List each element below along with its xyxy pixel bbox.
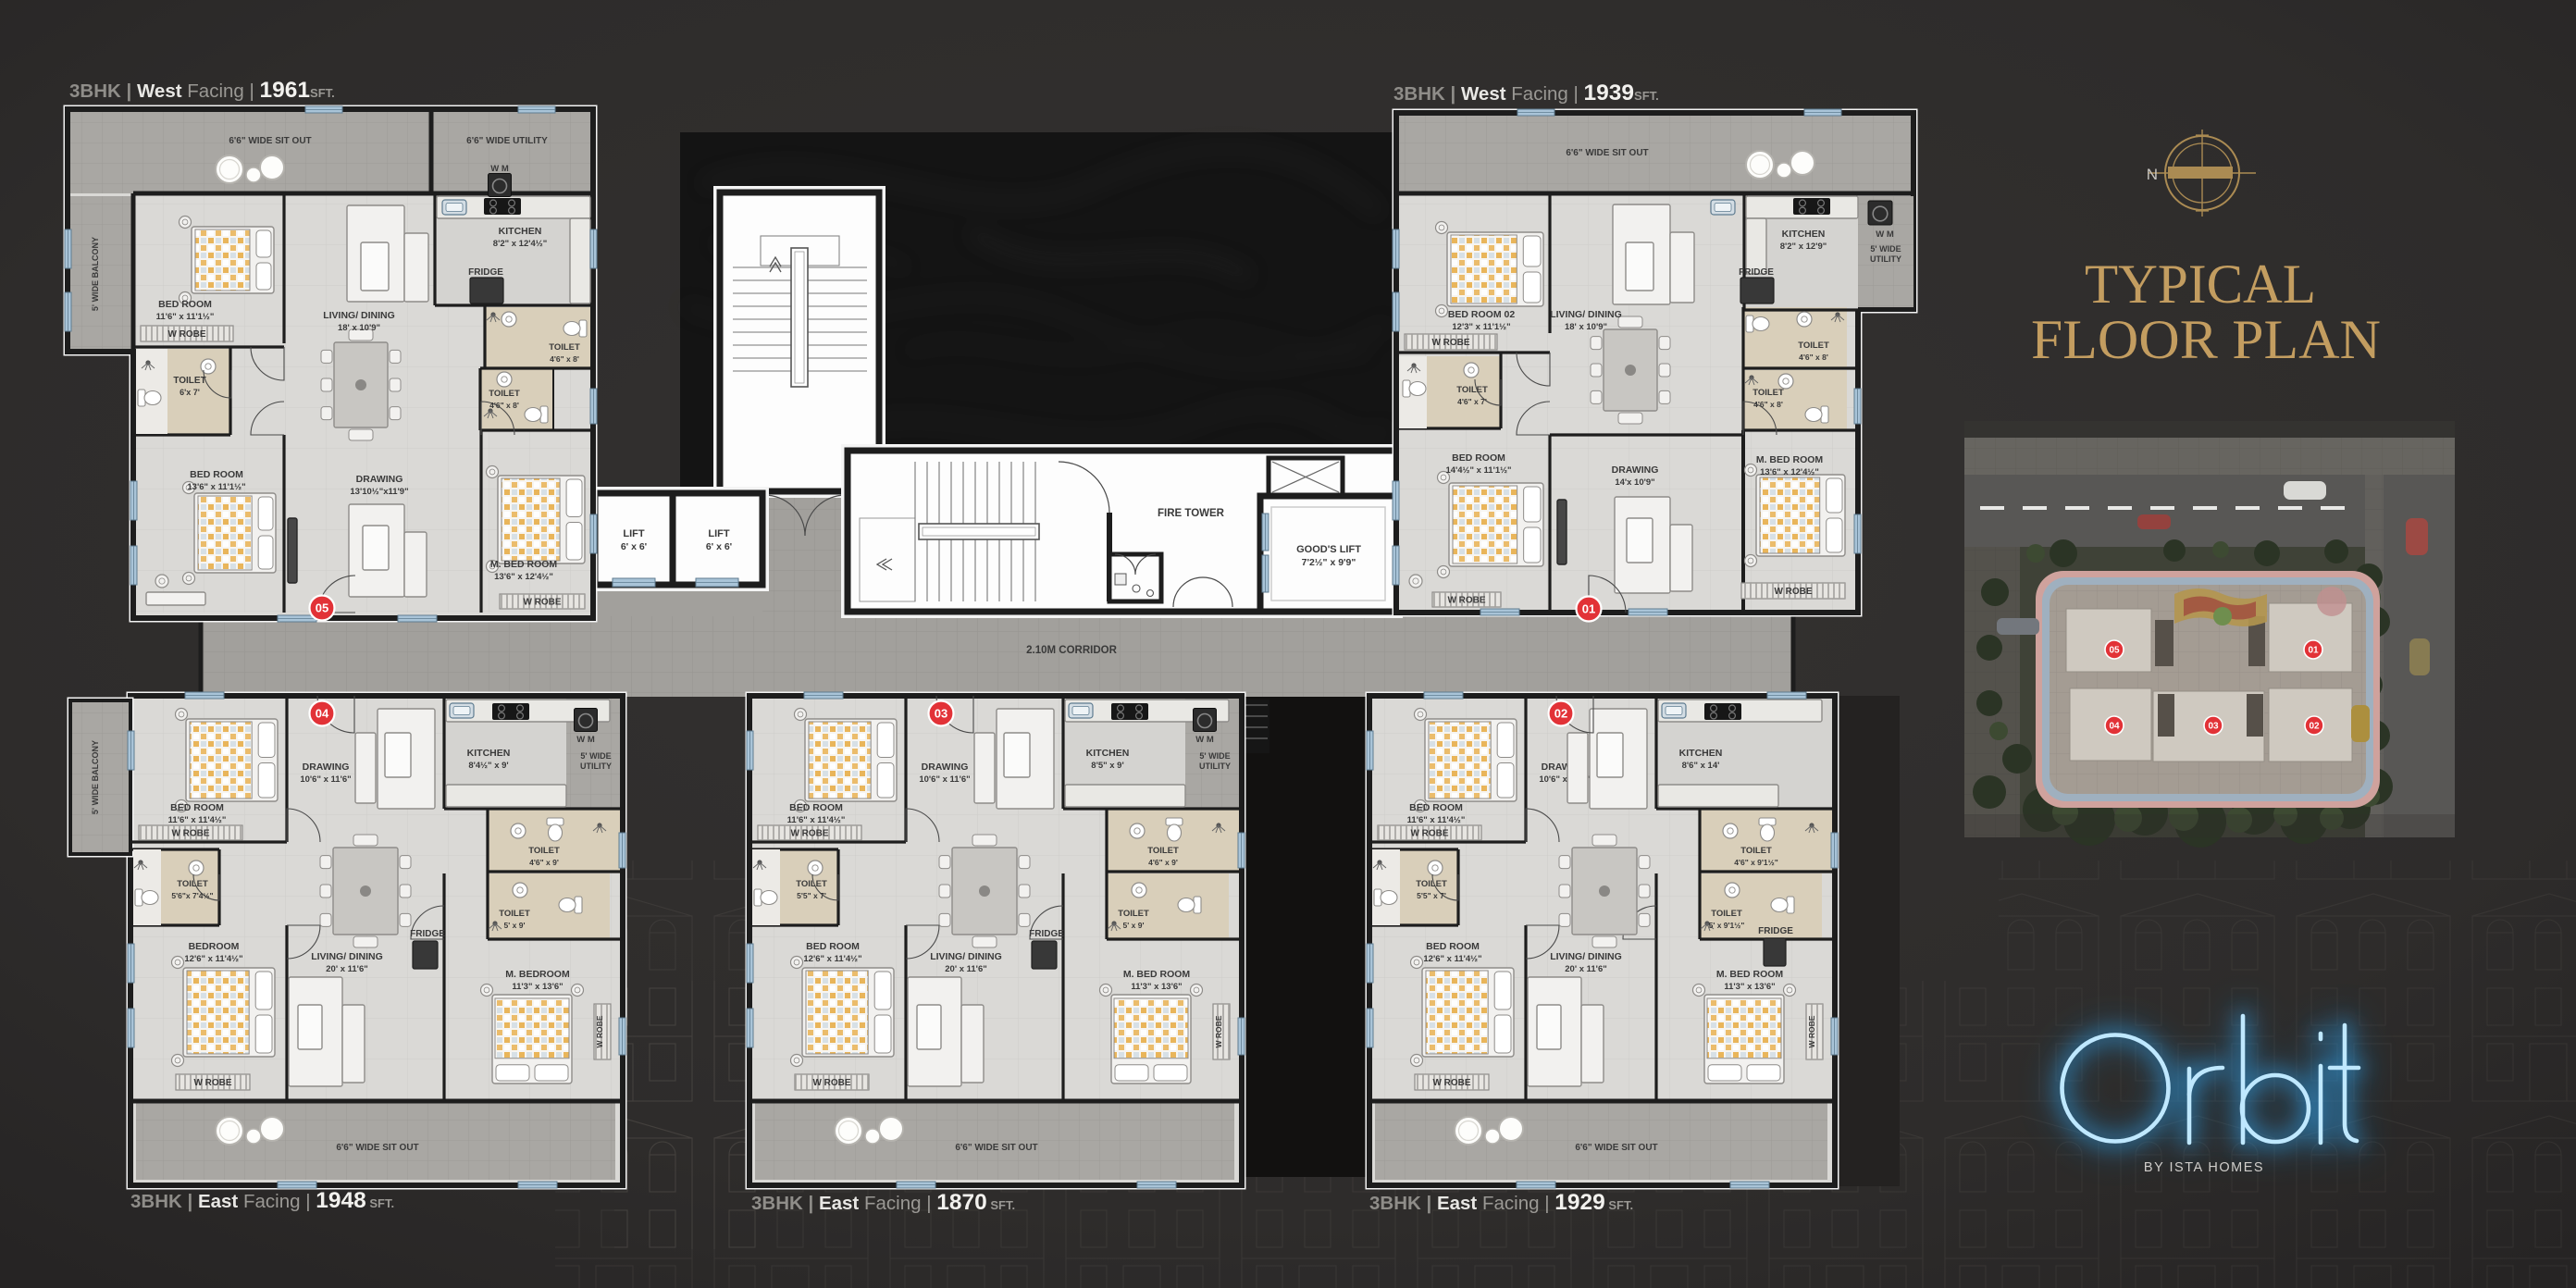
svg-text:TOILET: TOILET: [1740, 846, 1772, 856]
svg-text:04: 04: [316, 707, 329, 721]
svg-text:TOILET: TOILET: [1118, 909, 1149, 919]
svg-text:TOILET: TOILET: [1147, 846, 1179, 856]
svg-text:W ROBE: W ROBE: [171, 829, 209, 839]
svg-text:BED ROOM 02: BED ROOM 02: [1448, 309, 1516, 320]
svg-text:TOILET: TOILET: [177, 879, 208, 889]
svg-text:11'6" x 11'4½": 11'6" x 11'4½": [787, 815, 846, 825]
svg-text:6'6" WIDE SIT OUT: 6'6" WIDE SIT OUT: [955, 1143, 1037, 1153]
svg-text:W ROBE: W ROBE: [1807, 1015, 1816, 1047]
svg-text:12'6" x 11'4½": 12'6" x 11'4½": [803, 954, 861, 964]
svg-text:M. BED ROOM: M. BED ROOM: [1716, 969, 1784, 980]
svg-text:4'6" x 8': 4'6" x 8': [1799, 353, 1828, 362]
svg-text:4'6" x 9'1½": 4'6" x 9'1½": [1734, 858, 1778, 867]
svg-text:5' WIDE BALCONY: 5' WIDE BALCONY: [91, 237, 100, 311]
svg-text:5' x 9': 5' x 9': [504, 921, 526, 930]
svg-text:4'6" x 7': 4'6" x 7': [1457, 397, 1487, 406]
svg-text:4'6" x 9': 4'6" x 9': [1148, 858, 1178, 867]
svg-text:W ROBE: W ROBE: [1431, 338, 1469, 348]
svg-text:W M: W M: [1876, 229, 1894, 240]
svg-text:W ROBE: W ROBE: [193, 1078, 231, 1088]
svg-text:8'2" x 12'4½": 8'2" x 12'4½": [493, 239, 547, 249]
svg-text:M. BEDROOM: M. BEDROOM: [505, 969, 570, 980]
svg-text:3BHK | West Facing | 1961SFT.: 3BHK | West Facing | 1961SFT.: [69, 78, 335, 103]
svg-text:11'3" x 13'6": 11'3" x 13'6": [512, 982, 563, 992]
svg-text:KITCHEN: KITCHEN: [1782, 229, 1826, 240]
svg-text:KITCHEN: KITCHEN: [499, 226, 542, 237]
svg-text:8'6" x 14': 8'6" x 14': [1682, 761, 1720, 771]
svg-text:TOILET: TOILET: [1711, 909, 1742, 919]
svg-text:FRIDGE: FRIDGE: [1739, 267, 1774, 278]
svg-text:LIFT: LIFT: [708, 528, 729, 539]
svg-text:M. BED ROOM: M. BED ROOM: [1756, 454, 1824, 465]
svg-text:W ROBE: W ROBE: [812, 1078, 850, 1088]
svg-text:13'6" x 11'1½": 13'6" x 11'1½": [187, 482, 245, 492]
svg-text:5' WIDE: 5' WIDE: [1870, 244, 1901, 254]
svg-text:6'6" WIDE SIT OUT: 6'6" WIDE SIT OUT: [336, 1143, 418, 1153]
svg-text:8'2" x 12'9": 8'2" x 12'9": [1780, 241, 1827, 252]
svg-text:4'6" x 8': 4'6" x 8': [550, 354, 579, 364]
svg-text:W ROBE: W ROBE: [523, 598, 561, 608]
svg-text:LIFT: LIFT: [623, 528, 644, 539]
svg-text:LIVING/ DINING: LIVING/ DINING: [1550, 951, 1622, 962]
svg-text:12'3" x 11'1½": 12'3" x 11'1½": [1452, 322, 1510, 332]
svg-text:DRAWING: DRAWING: [1612, 464, 1659, 476]
svg-text:13'6" x 12'4½": 13'6" x 12'4½": [1760, 467, 1819, 477]
svg-text:14'x 10'9": 14'x 10'9": [1615, 477, 1654, 488]
svg-text:BED ROOM: BED ROOM: [789, 802, 843, 813]
svg-text:UTILITY: UTILITY: [580, 762, 612, 771]
svg-text:3BHK | East Facing | 1870 SFT.: 3BHK | East Facing | 1870 SFT.: [751, 1190, 1015, 1215]
svg-text:3BHK | West Facing | 1939SFT.: 3BHK | West Facing | 1939SFT.: [1393, 80, 1659, 105]
svg-text:LIVING/ DINING: LIVING/ DINING: [311, 951, 383, 962]
svg-text:11'6" x 11'4½": 11'6" x 11'4½": [1407, 815, 1466, 825]
svg-text:05: 05: [2109, 646, 2120, 656]
svg-text:LIVING/ DINING: LIVING/ DINING: [323, 310, 395, 321]
svg-text:3BHK | East Facing | 1929 SFT.: 3BHK | East Facing | 1929 SFT.: [1369, 1190, 1633, 1215]
svg-text:01: 01: [2308, 646, 2319, 656]
svg-text:4'6" x 8': 4'6" x 8': [1753, 400, 1783, 409]
svg-text:18' x 10'9": 18' x 10'9": [338, 323, 380, 333]
svg-text:M. BED ROOM: M. BED ROOM: [490, 559, 558, 570]
svg-text:W M: W M: [576, 735, 595, 745]
svg-text:KITCHEN: KITCHEN: [1086, 748, 1130, 759]
svg-text:FIRE TOWER: FIRE TOWER: [1158, 508, 1225, 519]
svg-text:FLOOR PLAN: FLOOR PLAN: [2031, 309, 2381, 370]
svg-text:11'6" x 11'1½": 11'6" x 11'1½": [156, 312, 215, 322]
svg-text:5'5" x 7': 5'5" x 7': [797, 891, 826, 900]
svg-text:TOILET: TOILET: [549, 342, 580, 353]
svg-text:18' x 10'9": 18' x 10'9": [1565, 322, 1607, 332]
svg-text:11'6" x 11'4½": 11'6" x 11'4½": [168, 815, 227, 825]
svg-text:03: 03: [2208, 722, 2219, 732]
svg-text:5'6"x 7'4½": 5'6"x 7'4½": [171, 891, 213, 900]
svg-text:KITCHEN: KITCHEN: [1679, 748, 1723, 759]
svg-text:02: 02: [2309, 722, 2320, 732]
svg-text:GOOD'S LIFT: GOOD'S LIFT: [1296, 544, 1361, 555]
svg-text:20' x 11'6": 20' x 11'6": [1565, 964, 1606, 974]
svg-text:TOILET: TOILET: [489, 389, 520, 399]
svg-text:14'4½" x 11'1½": 14'4½" x 11'1½": [1445, 465, 1511, 476]
svg-text:N: N: [2147, 166, 2158, 183]
svg-text:W ROBE: W ROBE: [1432, 1078, 1470, 1088]
svg-text:W M: W M: [1195, 735, 1214, 745]
svg-text:6'6" WIDE UTILITY: 6'6" WIDE UTILITY: [466, 136, 548, 146]
svg-text:LIVING/ DINING: LIVING/ DINING: [1550, 309, 1622, 320]
svg-text:BED ROOM: BED ROOM: [1452, 452, 1505, 464]
svg-text:W ROBE: W ROBE: [167, 329, 205, 340]
svg-text:5' WIDE BALCONY: 5' WIDE BALCONY: [91, 740, 100, 814]
svg-text:05: 05: [316, 601, 328, 615]
svg-text:6' x 6': 6' x 6': [621, 541, 647, 552]
svg-text:W ROBE: W ROBE: [1410, 829, 1448, 839]
svg-text:BED ROOM: BED ROOM: [158, 299, 212, 310]
svg-text:TOILET: TOILET: [528, 846, 560, 856]
svg-text:FRIDGE: FRIDGE: [468, 267, 503, 278]
svg-text:W M: W M: [490, 164, 509, 174]
svg-text:5' x 9': 5' x 9': [1123, 921, 1145, 930]
svg-text:DRAWING: DRAWING: [303, 762, 350, 773]
svg-text:6'6" WIDE SIT OUT: 6'6" WIDE SIT OUT: [1566, 148, 1648, 158]
svg-text:11'3" x 13'6": 11'3" x 13'6": [1131, 982, 1182, 992]
svg-text:W ROBE: W ROBE: [1214, 1015, 1223, 1047]
svg-text:TOILET: TOILET: [796, 879, 827, 889]
svg-text:7'2½" x 9'9": 7'2½" x 9'9": [1302, 557, 1356, 568]
svg-text:W ROBE: W ROBE: [595, 1015, 604, 1047]
svg-text:LIVING/ DINING: LIVING/ DINING: [930, 951, 1002, 962]
svg-text:5'5" x 7': 5'5" x 7': [1417, 891, 1446, 900]
svg-text:TOILET: TOILET: [1752, 388, 1784, 398]
svg-text:FRIDGE: FRIDGE: [1029, 929, 1064, 939]
svg-text:M. BED ROOM: M. BED ROOM: [1123, 969, 1191, 980]
svg-text:BEDROOM: BEDROOM: [189, 941, 240, 952]
svg-text:4'6" x 9': 4'6" x 9': [529, 858, 559, 867]
svg-text:3BHK | East Facing | 1948 SFT.: 3BHK | East Facing | 1948 SFT.: [130, 1188, 394, 1213]
svg-text:TOILET: TOILET: [1456, 385, 1488, 395]
svg-text:DRAWING: DRAWING: [922, 762, 969, 773]
svg-text:6'6" WIDE SIT OUT: 6'6" WIDE SIT OUT: [229, 136, 311, 146]
svg-text:FRIDGE: FRIDGE: [410, 929, 445, 939]
svg-text:BED ROOM: BED ROOM: [806, 941, 860, 952]
svg-text:BED ROOM: BED ROOM: [1426, 941, 1480, 952]
svg-text:BED ROOM: BED ROOM: [170, 802, 224, 813]
svg-text:13'6" x 12'4½": 13'6" x 12'4½": [494, 572, 553, 582]
svg-text:20' x 11'6": 20' x 11'6": [326, 964, 367, 974]
svg-text:6' x 6': 6' x 6': [706, 541, 732, 552]
svg-text:FRIDGE: FRIDGE: [1758, 926, 1793, 936]
svg-text:W ROBE: W ROBE: [1447, 596, 1485, 606]
svg-text:10'6" x 11'6": 10'6" x 11'6": [919, 774, 970, 785]
svg-text:UTILITY: UTILITY: [1199, 762, 1231, 771]
svg-text:TOILET: TOILET: [1416, 879, 1447, 889]
svg-text:13'10½"x11'9": 13'10½"x11'9": [350, 487, 408, 497]
svg-text:W ROBE: W ROBE: [1774, 587, 1812, 597]
svg-text:6'x 7': 6'x 7': [180, 388, 200, 397]
svg-text:UTILITY: UTILITY: [1870, 254, 1901, 264]
svg-text:04: 04: [2109, 722, 2120, 732]
svg-text:4'6" x 8': 4'6" x 8': [489, 401, 519, 410]
svg-text:12'6" x 11'4½": 12'6" x 11'4½": [1423, 954, 1481, 964]
svg-text:12'6" x 11'4½": 12'6" x 11'4½": [184, 954, 242, 964]
svg-text:W ROBE: W ROBE: [790, 829, 828, 839]
svg-text:5' WIDE: 5' WIDE: [1199, 751, 1230, 761]
svg-text:6'6" WIDE SIT OUT: 6'6" WIDE SIT OUT: [1575, 1143, 1657, 1153]
svg-text:8'4½" x 9': 8'4½" x 9': [468, 761, 508, 771]
svg-text:10'6" x 11'6": 10'6" x 11'6": [300, 774, 351, 785]
svg-text:TYPICAL: TYPICAL: [2085, 254, 2316, 315]
svg-text:BY ISTA HOMES: BY ISTA HOMES: [2144, 1160, 2264, 1175]
svg-text:TOILET: TOILET: [499, 909, 530, 919]
svg-text:2.10M CORRIDOR: 2.10M CORRIDOR: [1026, 645, 1117, 656]
svg-text:20' x 11'6": 20' x 11'6": [945, 964, 986, 974]
svg-text:11'3" x 13'6": 11'3" x 13'6": [1724, 982, 1775, 992]
svg-text:TOILET: TOILET: [1798, 341, 1829, 351]
svg-text:5' WIDE: 5' WIDE: [580, 751, 611, 761]
svg-text:KITCHEN: KITCHEN: [467, 748, 511, 759]
svg-text:DRAWING: DRAWING: [356, 474, 403, 485]
svg-text:02: 02: [1554, 707, 1567, 721]
svg-text:8'5" x 9': 8'5" x 9': [1091, 761, 1123, 771]
svg-text:01: 01: [1582, 602, 1595, 616]
svg-text:BED ROOM: BED ROOM: [1409, 802, 1463, 813]
svg-text:5' x 9'1½": 5' x 9'1½": [1709, 921, 1745, 930]
svg-text:TOILET: TOILET: [173, 376, 205, 386]
svg-text:BED ROOM: BED ROOM: [190, 469, 243, 480]
svg-text:03: 03: [935, 707, 947, 721]
